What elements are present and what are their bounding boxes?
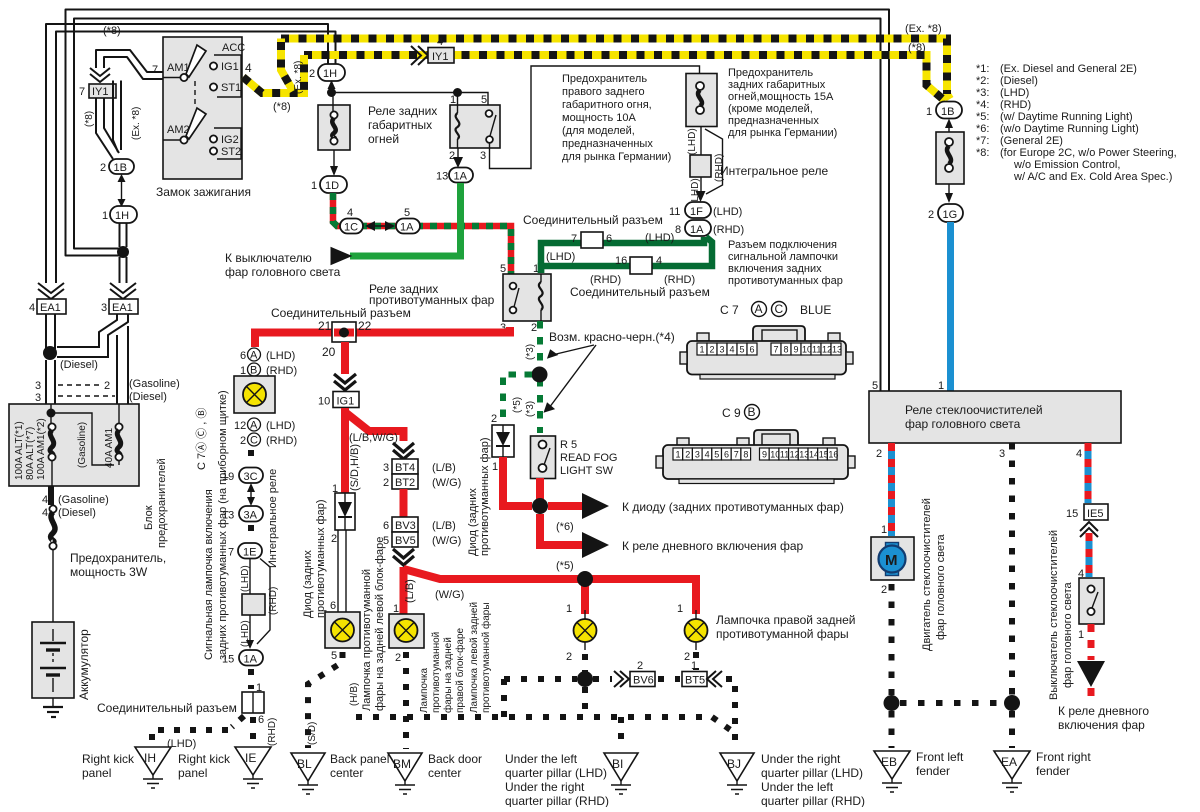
svg-text:(RHD): (RHD): [267, 718, 278, 746]
svg-text:quarter pillar (LHD): quarter pillar (LHD): [761, 766, 863, 780]
svg-text:противотуманной: противотуманной: [431, 632, 442, 713]
svg-text:Back panel: Back panel: [330, 752, 389, 766]
svg-text:предназначенных: предназначенных: [562, 138, 653, 150]
svg-text:(Gasoline): (Gasoline): [77, 422, 88, 468]
svg-text:(*8): (*8): [84, 111, 95, 127]
svg-text:(L/B,W/G): (L/B,W/G): [349, 432, 398, 444]
svg-text:(кроме моделей,: (кроме моделей,: [728, 103, 813, 115]
svg-text:Front left: Front left: [916, 750, 964, 764]
svg-text:Соединительный разъем: Соединительный разъем: [570, 285, 710, 299]
svg-text:К диоду (задних противотуманны: К диоду (задних противотуманных фар): [622, 500, 844, 514]
svg-text:правой блок-фаре: правой блок-фаре: [454, 627, 466, 713]
svg-text:BLUE: BLUE: [800, 303, 831, 317]
svg-text:5: 5: [481, 94, 487, 106]
svg-text:A: A: [755, 302, 763, 316]
svg-text:8: 8: [675, 224, 681, 236]
svg-text:1: 1: [450, 94, 456, 106]
svg-text:2: 2: [331, 533, 337, 545]
svg-text:BM: BM: [393, 757, 411, 771]
svg-text:1: 1: [492, 461, 498, 473]
svg-text:BV3: BV3: [395, 520, 416, 532]
svg-text:ST1: ST1: [221, 82, 241, 94]
svg-text:A: A: [250, 350, 258, 362]
svg-text:Предохранитель: Предохранитель: [728, 67, 813, 79]
svg-text:20: 20: [322, 345, 336, 359]
svg-text:*4:: *4:: [976, 99, 989, 111]
svg-text:2: 2: [685, 450, 690, 460]
svg-text:3: 3: [695, 450, 700, 460]
svg-text:противотуманных фар): противотуманных фар): [315, 499, 327, 618]
svg-text:2: 2: [710, 345, 715, 355]
svg-text:1: 1: [311, 180, 317, 192]
svg-text:1: 1: [691, 660, 697, 672]
svg-text:7: 7: [152, 64, 158, 76]
svg-text:80A ALT(*7): 80A ALT(*7): [25, 427, 36, 480]
svg-text:(LHD): (LHD): [167, 738, 196, 750]
svg-text:Интегральное реле: Интегральное реле: [720, 164, 829, 178]
svg-text:7: 7: [774, 345, 779, 355]
svg-text:4: 4: [29, 302, 35, 314]
svg-text:Соединительный разъем: Соединительный разъем: [97, 701, 237, 715]
svg-text:(Diesel): (Diesel): [60, 359, 98, 371]
svg-text:C: C: [775, 302, 784, 316]
svg-text:Аккумулятор: Аккумулятор: [77, 629, 91, 700]
svg-text:*6:: *6:: [976, 123, 989, 135]
svg-text:quarter pillar (LHD): quarter pillar (LHD): [505, 766, 607, 780]
svg-text:15: 15: [1066, 508, 1078, 520]
svg-text:*7:: *7:: [976, 135, 989, 147]
svg-text:(Diesel): (Diesel): [58, 507, 96, 519]
svg-text:1A: 1A: [244, 654, 258, 666]
svg-text:(LHD): (LHD): [713, 206, 742, 218]
svg-text:Лампочка левой задней: Лампочка левой задней: [469, 602, 480, 713]
svg-text:(S/D): (S/D): [307, 722, 318, 745]
svg-text:1C: 1C: [344, 222, 358, 234]
svg-text:1A: 1A: [454, 171, 468, 183]
svg-text:С 7: С 7: [720, 303, 739, 317]
svg-text:(LHD): (LHD): [240, 565, 251, 592]
svg-text:3: 3: [720, 345, 725, 355]
svg-text:IE: IE: [245, 751, 256, 765]
svg-text:Разъем подключения: Разъем подключения: [728, 239, 837, 251]
svg-text:Предохранитель: Предохранитель: [562, 73, 647, 85]
svg-text:2: 2: [100, 162, 106, 174]
svg-text:габаритного огня,: габаритного огня,: [562, 99, 652, 111]
svg-text:(RHD): (RHD): [713, 224, 744, 236]
svg-text:(*5): (*5): [556, 560, 574, 572]
svg-text:(для моделей,: (для моделей,: [562, 125, 635, 137]
svg-text:center: center: [330, 766, 363, 780]
svg-text:1B: 1B: [941, 106, 954, 118]
svg-text:1: 1: [102, 210, 108, 222]
svg-text:(*8): (*8): [908, 42, 926, 54]
svg-text:(W/G): (W/G): [435, 589, 464, 601]
svg-text:BI: BI: [612, 757, 623, 771]
svg-text:(Diesel): (Diesel): [129, 391, 167, 403]
svg-text:(RHD): (RHD): [268, 587, 279, 615]
svg-text:предназначенных: предназначенных: [728, 115, 819, 127]
svg-text:Лампочка противотуманной: Лампочка противотуманной: [361, 569, 373, 711]
svg-text:BT4: BT4: [395, 462, 415, 474]
svg-text:(W/G): (W/G): [432, 477, 461, 489]
svg-text:100A ALT(*1): 100A ALT(*1): [14, 421, 25, 480]
svg-text:Двигатель стеклоочистителей: Двигатель стеклоочистителей: [921, 498, 933, 651]
svg-text:С 9: С 9: [722, 406, 741, 420]
svg-text:Реле стеклоочистителей: Реле стеклоочистителей: [905, 403, 1043, 417]
svg-text:Under the right: Under the right: [761, 752, 841, 766]
svg-text:(w/ Daytime Running Light): (w/ Daytime Running Light): [1000, 111, 1133, 123]
svg-text:C: C: [250, 435, 258, 447]
svg-text:предохранителей: предохранителей: [156, 458, 168, 548]
svg-text:*5:: *5:: [976, 111, 989, 123]
svg-text:2: 2: [928, 209, 934, 221]
svg-text:*2:: *2:: [976, 75, 989, 87]
svg-text:Соединительный разъем: Соединительный разъем: [523, 213, 663, 227]
svg-text:6: 6: [383, 520, 389, 532]
svg-text:13: 13: [832, 345, 842, 355]
svg-text:Возм. красно-черн.(*4): Возм. красно-черн.(*4): [549, 330, 675, 344]
svg-text:Соединительный разъем: Соединительный разъем: [271, 306, 411, 320]
svg-text:Right kick: Right kick: [178, 752, 231, 766]
svg-text:фар головного света: фар головного света: [905, 417, 1021, 431]
svg-text:ST2: ST2: [221, 146, 241, 158]
svg-text:4: 4: [656, 255, 662, 267]
svg-text:2: 2: [876, 448, 882, 460]
svg-text:7: 7: [734, 450, 739, 460]
svg-text:3C: 3C: [244, 471, 258, 483]
svg-text:*8:: *8:: [976, 147, 989, 159]
svg-text:R 5: R 5: [560, 439, 577, 451]
svg-text:1: 1: [938, 380, 944, 392]
svg-text:4: 4: [42, 507, 48, 519]
svg-text:Предохранитель,: Предохранитель,: [70, 551, 166, 565]
svg-text:5: 5: [331, 650, 337, 662]
svg-text:1A: 1A: [400, 222, 414, 234]
svg-text:3: 3: [383, 462, 389, 474]
svg-text:7: 7: [79, 86, 85, 98]
svg-text:фар головного света: фар головного света: [225, 265, 341, 279]
svg-text:quarter pillar (RHD): quarter pillar (RHD): [761, 794, 865, 807]
svg-text:B: B: [748, 405, 756, 419]
svg-text:3: 3: [101, 302, 107, 314]
svg-text:8: 8: [743, 450, 748, 460]
svg-text:4: 4: [347, 207, 353, 219]
svg-text:К реле дневного: К реле дневного: [1058, 704, 1149, 718]
svg-text:2: 2: [637, 660, 643, 672]
svg-text:Under the left: Under the left: [761, 780, 834, 794]
svg-text:1: 1: [677, 603, 683, 615]
svg-text:1E: 1E: [243, 547, 256, 559]
svg-text:2: 2: [881, 584, 887, 596]
svg-text:(Ex. *8): (Ex. *8): [131, 107, 142, 140]
svg-text:огней,мощность 15А: огней,мощность 15А: [728, 91, 834, 103]
svg-text:IE5: IE5: [1087, 508, 1104, 520]
svg-text:1: 1: [676, 450, 681, 460]
svg-text:5: 5: [404, 207, 410, 219]
svg-text:2: 2: [309, 68, 315, 80]
svg-text:2: 2: [566, 651, 572, 663]
svg-text:EA: EA: [1001, 755, 1017, 769]
svg-text:6: 6: [750, 345, 755, 355]
svg-text:фар головного света: фар головного света: [935, 533, 947, 640]
svg-text:Right kick: Right kick: [82, 752, 135, 766]
svg-text:EA1: EA1: [112, 302, 133, 314]
svg-text:panel: panel: [178, 766, 207, 780]
svg-text:5: 5: [500, 263, 506, 275]
svg-text:6: 6: [606, 233, 612, 245]
svg-text:1: 1: [881, 524, 887, 536]
svg-text:правого заднего: правого заднего: [562, 86, 645, 98]
svg-text:1: 1: [700, 345, 705, 355]
svg-text:6: 6: [330, 600, 336, 612]
svg-text:2: 2: [491, 413, 497, 425]
svg-text:(Diesel): (Diesel): [1000, 75, 1038, 87]
svg-text:M: M: [885, 552, 898, 569]
svg-text:A: A: [250, 420, 258, 432]
svg-text:13: 13: [436, 171, 448, 183]
svg-text:22: 22: [358, 319, 372, 333]
svg-text:16: 16: [828, 450, 838, 460]
svg-text:center: center: [428, 766, 461, 780]
svg-text:IY1: IY1: [432, 51, 449, 63]
svg-text:(LHD): (LHD): [266, 420, 295, 432]
svg-text:(Ex. Diesel and General 2E): (Ex. Diesel and General 2E): [1000, 63, 1137, 75]
svg-text:6: 6: [724, 450, 729, 460]
svg-text:5: 5: [740, 345, 745, 355]
svg-text:(*8): (*8): [273, 101, 291, 113]
svg-text:мощность 10А: мощность 10А: [562, 112, 636, 124]
svg-text:задних габаритных: задних габаритных: [728, 79, 826, 91]
svg-text:(LHD): (LHD): [1000, 87, 1029, 99]
svg-text:(RHD): (RHD): [266, 435, 297, 447]
svg-text:16: 16: [615, 255, 627, 267]
svg-text:21: 21: [318, 319, 332, 333]
svg-text:Реле задних: Реле задних: [368, 104, 437, 118]
svg-text:10: 10: [318, 396, 330, 408]
svg-text:3: 3: [480, 150, 486, 162]
svg-text:6: 6: [258, 714, 264, 726]
svg-text:BT5: BT5: [685, 675, 705, 687]
svg-text:*1:: *1:: [976, 63, 989, 75]
svg-text:4: 4: [437, 36, 443, 48]
svg-text:1: 1: [1078, 629, 1084, 641]
svg-text:противотуманной фары: противотуманной фары: [716, 627, 849, 641]
svg-text:(*5): (*5): [512, 397, 523, 413]
svg-text:фары на задней: фары на задней: [442, 637, 454, 713]
svg-text:габаритных: габаритных: [368, 118, 432, 132]
svg-text:40A AM1: 40A AM1: [104, 428, 115, 468]
svg-text:7: 7: [571, 233, 577, 245]
svg-text:включения задних: включения задних: [728, 263, 822, 275]
svg-text:3A: 3A: [244, 510, 258, 522]
svg-text:100A AM1(*2): 100A AM1(*2): [36, 418, 47, 480]
svg-text:1G: 1G: [943, 209, 958, 221]
svg-text:Выключатель стеклоочистителей: Выключатель стеклоочистителей: [1048, 530, 1060, 700]
svg-text:IG1: IG1: [337, 396, 355, 408]
svg-text:1H: 1H: [115, 210, 129, 222]
svg-text:(W/G): (W/G): [432, 535, 461, 547]
svg-text:(*3): (*3): [525, 344, 536, 360]
svg-text:включения фар: включения фар: [1058, 718, 1145, 732]
svg-text:11: 11: [780, 450, 789, 460]
svg-text:противотуманных фар): противотуманных фар): [479, 437, 491, 556]
svg-text:9: 9: [794, 345, 799, 355]
svg-text:(Gasoline): (Gasoline): [58, 494, 109, 506]
svg-text:противотуманных фар: противотуманных фар: [728, 275, 843, 287]
svg-text:4: 4: [705, 450, 710, 460]
svg-text:Диод (задних: Диод (задних: [467, 488, 479, 556]
svg-text:fender: fender: [916, 764, 950, 778]
svg-text:(Gasoline): (Gasoline): [129, 378, 180, 390]
svg-text:(Ex. *8): (Ex. *8): [293, 61, 304, 94]
svg-text:4: 4: [730, 345, 735, 355]
svg-text:фар головного света: фар головного света: [1062, 581, 1074, 688]
svg-text:противотуманных фар: противотуманных фар: [369, 293, 495, 307]
svg-text:Back door: Back door: [428, 752, 482, 766]
svg-text:3: 3: [999, 448, 1005, 460]
svg-text:Интегральное реле: Интегральное реле: [267, 469, 279, 568]
svg-text:(Ex. *8): (Ex. *8): [905, 23, 942, 35]
svg-text:Under the right: Under the right: [505, 780, 585, 794]
svg-text:B: B: [250, 365, 257, 377]
svg-text:(LHD): (LHD): [687, 128, 698, 155]
svg-text:IG1: IG1: [221, 61, 239, 73]
svg-text:BJ: BJ: [727, 757, 741, 771]
svg-text:Блок: Блок: [143, 505, 155, 530]
svg-text:для рынка Германии): для рынка Германии): [562, 151, 671, 163]
svg-text:Under the left: Under the left: [505, 752, 578, 766]
svg-text:1B: 1B: [114, 162, 127, 174]
svg-text:задних противотуманных фар (на: задних противотуманных фар (на приборном…: [217, 390, 229, 660]
svg-text:(L/B): (L/B): [432, 520, 456, 532]
svg-text:2: 2: [684, 651, 690, 663]
svg-text:сигнальной лампочки: сигнальной лампочки: [728, 251, 838, 263]
svg-text:4: 4: [245, 61, 252, 75]
svg-text:5: 5: [872, 380, 878, 392]
svg-text:С 7Ⓐ Ⓒ , Ⓑ: С 7Ⓐ Ⓒ , Ⓑ: [195, 408, 208, 470]
svg-text:1F: 1F: [690, 206, 703, 218]
svg-text:мощность 3W: мощность 3W: [70, 565, 148, 579]
svg-text:2: 2: [449, 150, 455, 162]
svg-text:4: 4: [42, 494, 48, 506]
svg-text:BT2: BT2: [395, 477, 415, 489]
svg-text:12: 12: [234, 420, 246, 432]
svg-text:фары на задней левой блок-фаре: фары на задней левой блок-фаре: [374, 537, 386, 711]
svg-text:5: 5: [714, 450, 719, 460]
svg-text:BV6: BV6: [633, 675, 654, 687]
svg-text:Front right: Front right: [1036, 750, 1091, 764]
svg-text:11: 11: [812, 345, 821, 355]
svg-text:1H: 1H: [323, 68, 337, 80]
svg-text:LIGHT SW: LIGHT SW: [560, 465, 614, 477]
svg-text:огней: огней: [368, 132, 399, 146]
svg-text:2: 2: [383, 477, 389, 489]
svg-text:Лампочка правой задней: Лампочка правой задней: [716, 613, 855, 627]
svg-text:(RHD): (RHD): [1000, 99, 1031, 111]
svg-text:(H/B): (H/B): [349, 683, 360, 706]
svg-text:для рынка Германии): для рынка Германии): [728, 127, 837, 139]
svg-text:1D: 1D: [325, 180, 339, 192]
svg-text:w/ A/C and Ex. Cold Area Spec: w/ A/C and Ex. Cold Area Spec.): [1013, 171, 1172, 183]
svg-text:Сигнальная лампочка включения: Сигнальная лампочка включения: [203, 489, 215, 660]
svg-text:(L/B): (L/B): [404, 579, 416, 603]
svg-text:BL: BL: [297, 757, 312, 771]
svg-text:К выключателю: К выключателю: [225, 251, 312, 265]
svg-text:IG2: IG2: [221, 134, 239, 146]
svg-text:EB: EB: [881, 755, 897, 769]
svg-text:(*3): (*3): [525, 401, 536, 417]
svg-text:2: 2: [531, 322, 537, 334]
svg-text:(*8): (*8): [103, 25, 121, 37]
svg-text:11: 11: [669, 206, 680, 218]
svg-text:*3:: *3:: [976, 87, 989, 99]
svg-text:(w/o Daytime Running Light): (w/o Daytime Running Light): [1000, 123, 1139, 135]
svg-text:(L/B): (L/B): [432, 462, 456, 474]
svg-text:2: 2: [240, 435, 246, 447]
svg-text:4: 4: [1076, 448, 1082, 460]
svg-text:IY1: IY1: [92, 86, 109, 98]
svg-text:9: 9: [762, 450, 767, 460]
svg-text:(S/D,H/B): (S/D,H/B): [349, 444, 361, 491]
svg-text:fender: fender: [1036, 764, 1070, 778]
svg-text:panel: panel: [82, 766, 111, 780]
svg-text:(*6): (*6): [556, 521, 574, 533]
svg-text:EA1: EA1: [40, 302, 61, 314]
svg-text:BV5: BV5: [395, 535, 416, 547]
svg-text:1: 1: [566, 603, 572, 615]
svg-text:(General 2E): (General 2E): [1000, 135, 1063, 147]
svg-text:1A: 1A: [690, 224, 704, 236]
svg-text:Лампочка: Лампочка: [419, 667, 430, 713]
svg-text:8: 8: [784, 345, 789, 355]
svg-text:READ FOG: READ FOG: [560, 452, 617, 464]
svg-text:quarter pillar (RHD): quarter pillar (RHD): [505, 794, 609, 807]
svg-text:3: 3: [35, 380, 41, 392]
svg-text:(LHD): (LHD): [645, 232, 674, 244]
svg-text:6: 6: [240, 350, 246, 362]
svg-text:2: 2: [104, 380, 110, 392]
svg-text:Диод (задних: Диод (задних: [302, 550, 314, 618]
svg-text:3: 3: [35, 392, 41, 404]
svg-text:IH: IH: [144, 751, 156, 765]
svg-text:1: 1: [926, 106, 932, 118]
svg-text:(LHD): (LHD): [266, 350, 295, 362]
svg-text:(for Europe 2C, w/o Power Stee: (for Europe 2C, w/o Power Steering,: [1000, 147, 1177, 159]
svg-text:w/o Emission Control,: w/o Emission Control,: [1013, 159, 1120, 171]
svg-text:Замок зажигания: Замок зажигания: [156, 185, 251, 199]
svg-text:противотуманной фары: противотуманной фары: [480, 602, 492, 713]
svg-text:К реле дневного включения фар: К реле дневного включения фар: [622, 539, 804, 553]
svg-text:(LHD): (LHD): [546, 251, 575, 263]
svg-text:2: 2: [395, 652, 401, 664]
svg-text:ACC: ACC: [222, 42, 245, 54]
